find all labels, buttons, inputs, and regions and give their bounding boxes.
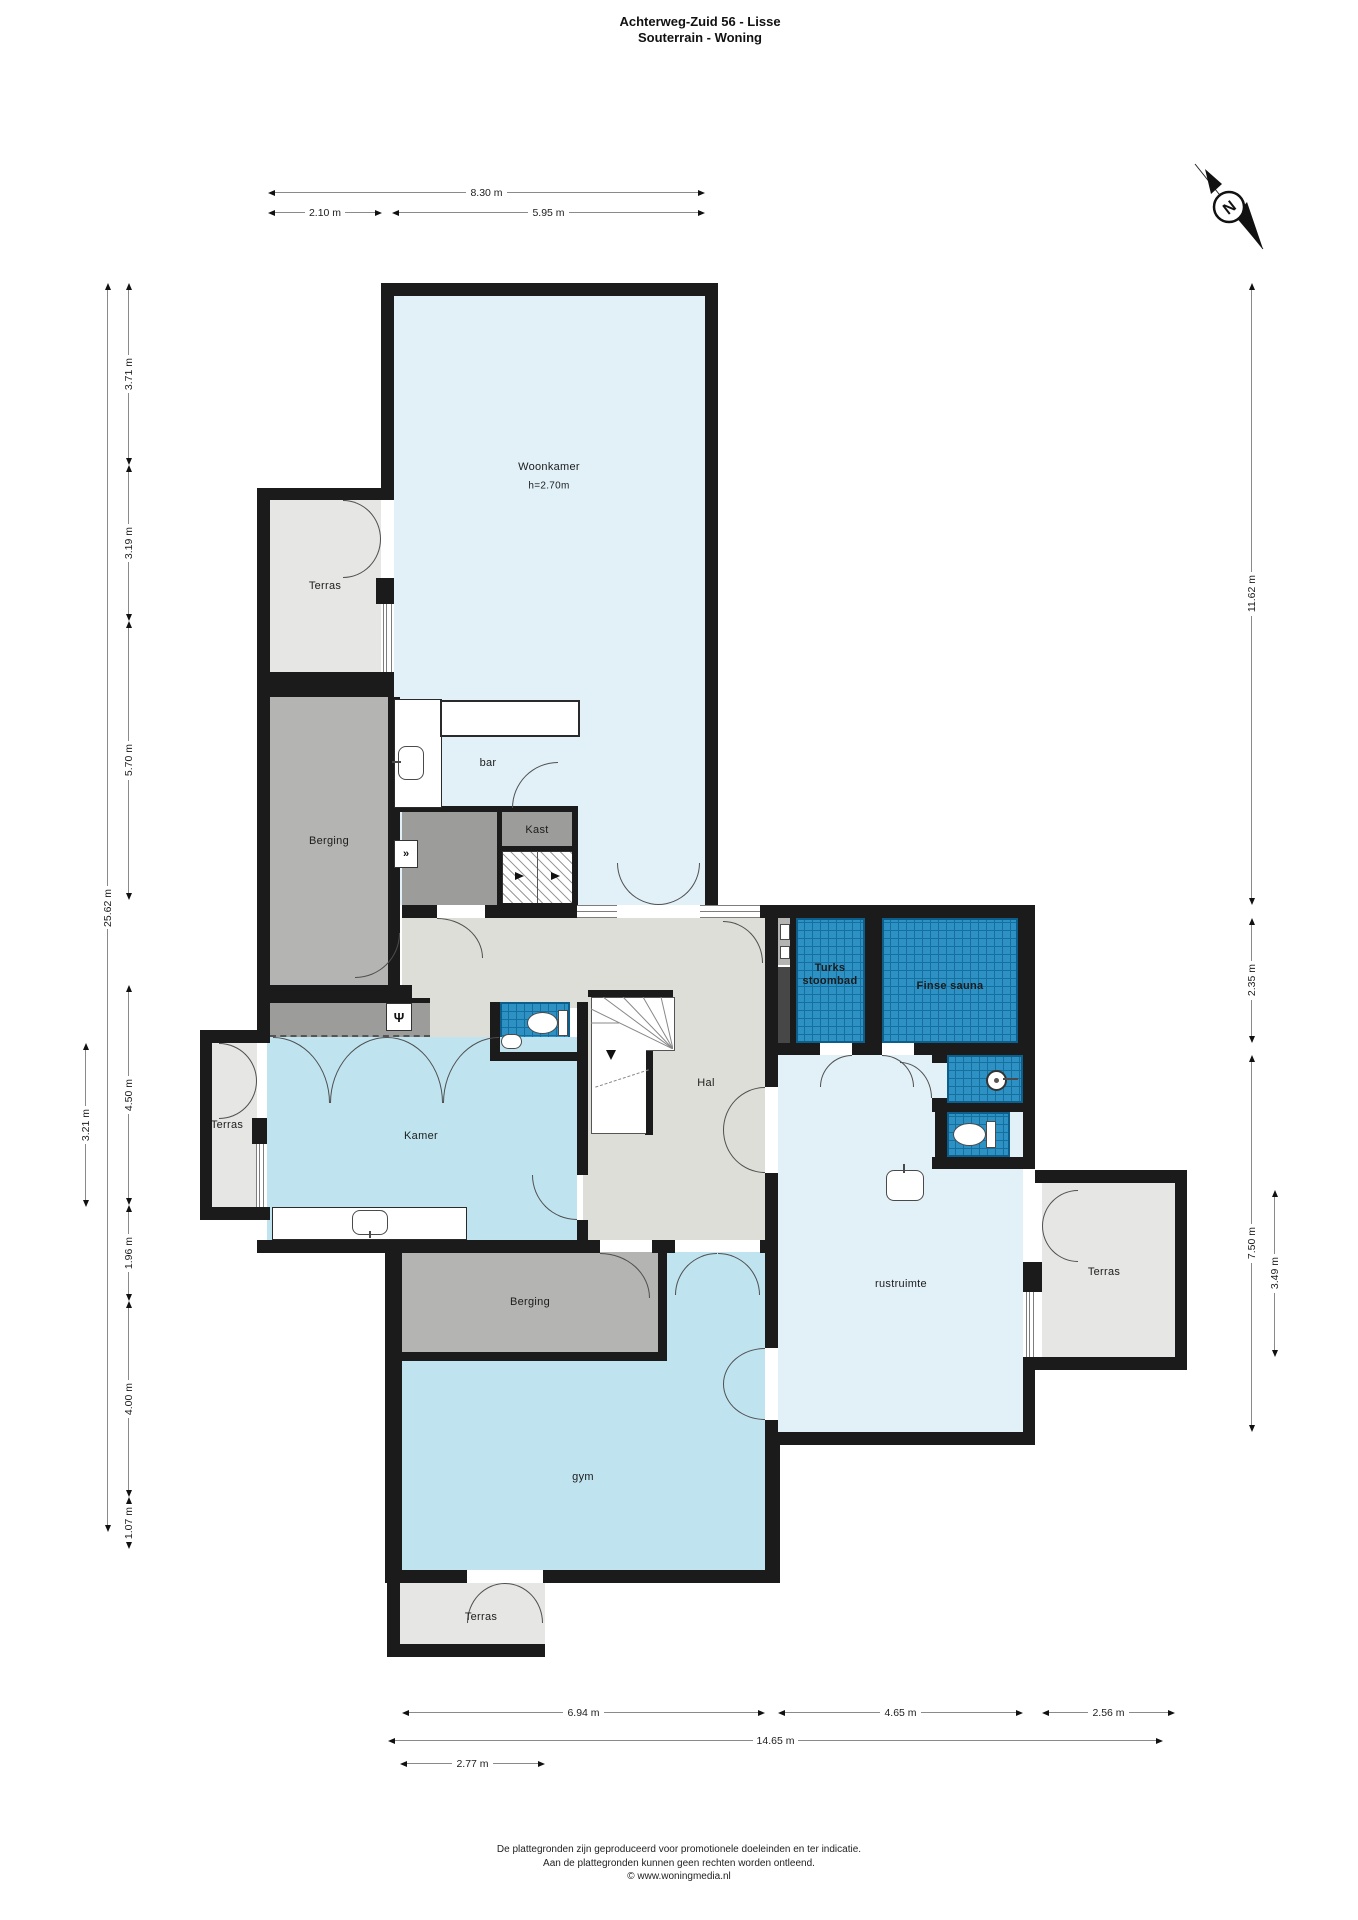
wall	[1175, 1170, 1187, 1370]
wall	[252, 1118, 267, 1144]
window	[577, 905, 617, 918]
stairs-arrow-1	[515, 872, 524, 880]
dimension-bottom-terras-r: 2.56 m	[1042, 1706, 1175, 1719]
room-label-hal: Hal	[697, 1077, 714, 1089]
sink-toilet-kamer	[501, 1034, 522, 1049]
wall	[257, 488, 394, 500]
vestibule-fixture	[780, 946, 790, 959]
footer-line2: Aan de plattegronden kunnen geen rechten…	[329, 1857, 1029, 1871]
wall	[760, 1240, 778, 1253]
wall	[932, 1103, 1035, 1112]
wall	[778, 905, 1035, 918]
room-label-berging-2: Berging	[510, 1296, 550, 1308]
wall	[497, 903, 577, 918]
wall	[914, 1043, 1035, 1055]
wall	[588, 990, 673, 997]
wall	[200, 1207, 270, 1220]
compass-rose: N	[1183, 152, 1275, 254]
toilet-bowl	[527, 1012, 558, 1034]
room-label-rustruimte: rustruimte	[875, 1278, 927, 1290]
floorplan-page: Achterweg-Zuid 56 - Lisse Souterrain - W…	[0, 0, 1358, 1920]
title-address: Achterweg-Zuid 56 - Lisse	[420, 14, 980, 30]
footer-line1: De plattegronden zijn geproduceerd voor …	[329, 1843, 1029, 1857]
bar-sink-tap	[392, 761, 401, 763]
wall	[572, 812, 578, 905]
dimension-left-5: 1.96 m	[122, 1205, 135, 1301]
wall	[402, 905, 437, 918]
stairs-divider	[537, 851, 538, 903]
wall	[765, 1173, 778, 1228]
room-height-woonkamer: h=2.70m	[528, 481, 569, 492]
dimension-bottom-terras-o: 2.77 m	[400, 1757, 545, 1770]
wall	[257, 998, 270, 1032]
room-label-berging-1: Berging	[309, 835, 349, 847]
wall	[381, 283, 718, 296]
wall	[765, 1445, 780, 1583]
room-label-terras-onder: Terras	[465, 1611, 497, 1623]
footer-disclaimer: De plattegronden zijn geproduceerd voor …	[329, 1843, 1029, 1884]
room-label-turks-stoombad: Turks stoombad	[803, 962, 858, 988]
wall	[658, 1250, 667, 1361]
dimension-top-total: 8.30 m	[268, 186, 705, 199]
dimension-left-7: 1.07 m	[122, 1497, 135, 1549]
wall	[765, 1043, 820, 1055]
room-label-gym: gym	[572, 1471, 594, 1483]
toilet-bowl	[953, 1123, 986, 1146]
window	[383, 604, 392, 672]
shower-head-icon	[986, 1070, 1007, 1091]
page-title: Achterweg-Zuid 56 - Lisse Souterrain - W…	[420, 14, 980, 46]
wall	[645, 1049, 653, 1135]
room-label-kamer: Kamer	[404, 1130, 438, 1142]
stairs-winder-lower	[591, 1049, 646, 1134]
wall	[387, 1644, 545, 1657]
boiler-glyph: »	[403, 848, 409, 860]
dimension-left-4: 4.50 m	[122, 985, 135, 1205]
wall	[577, 1002, 588, 1175]
wall	[932, 1055, 947, 1063]
wall	[790, 918, 796, 1043]
wall	[490, 1052, 577, 1061]
duct-niche	[778, 967, 790, 1043]
wall	[257, 672, 394, 697]
dimension-top-woonkamer: 5.95 m	[392, 206, 705, 219]
dimension-right-1: 11.62 m	[1245, 283, 1258, 905]
room-label-finse-sauna: Finse sauna	[917, 980, 984, 992]
window	[256, 1144, 264, 1207]
dimension-left-2: 3.19 m	[122, 465, 135, 621]
room-label-terras-rechts: Terras	[1088, 1266, 1120, 1278]
dimension-right-terras: 3.49 m	[1268, 1190, 1281, 1357]
stairs-arrow-2	[551, 872, 560, 880]
wall	[257, 500, 270, 998]
coat-rack-icon: Ψ	[386, 1003, 412, 1031]
wall	[865, 918, 882, 1043]
dimension-left-terras: 3.21 m	[79, 1043, 92, 1207]
kamer-vanity-tap	[369, 1231, 371, 1238]
wall	[1035, 1357, 1187, 1370]
dimension-top-terras: 2.10 m	[268, 206, 382, 219]
room-label-bar: bar	[480, 757, 497, 769]
coat-rack-glyph: Ψ	[394, 1010, 405, 1025]
wall	[765, 1055, 778, 1087]
wall	[935, 1112, 947, 1157]
room-label-kast: Kast	[525, 824, 548, 836]
turks-line2: stoombad	[803, 975, 858, 988]
room-label-woonkamer: Woonkamer	[518, 461, 580, 473]
shower-pipe	[1003, 1078, 1018, 1080]
window	[700, 905, 760, 918]
dimension-left-3: 5.70 m	[122, 621, 135, 900]
wall	[402, 1352, 658, 1361]
toilet-tank	[558, 1010, 568, 1036]
stairs-winder-treads	[591, 997, 673, 1049]
dimension-left-6: 4.00 m	[122, 1301, 135, 1497]
wall	[1035, 1170, 1187, 1183]
wall	[497, 812, 502, 905]
dimension-left-total: 25.62 m	[101, 283, 114, 1532]
title-floor: Souterrain - Woning	[420, 30, 980, 46]
toilet-tank	[986, 1121, 996, 1148]
wall	[485, 905, 499, 918]
toilet-fixture	[527, 1010, 569, 1036]
rustruimte-sink-tap	[903, 1164, 905, 1173]
vestibule-fixture	[780, 924, 790, 940]
dimension-bottom-total: 14.65 m	[388, 1734, 1163, 1747]
footer-copyright: © www.woningmedia.nl	[329, 1870, 1029, 1884]
dimension-right-3: 7.50 m	[1245, 1055, 1258, 1432]
dimension-left-1: 3.71 m	[122, 283, 135, 465]
wall	[765, 1420, 778, 1445]
room-label-terras-boven: Terras	[309, 580, 341, 592]
floor-gym	[402, 1361, 765, 1570]
dimension-bottom-rustruimte: 4.65 m	[778, 1706, 1023, 1719]
wall	[1023, 1262, 1042, 1292]
wall	[932, 1157, 1035, 1169]
rustruimte-sink	[886, 1170, 924, 1201]
wall	[543, 1570, 780, 1583]
wall	[376, 578, 394, 604]
boiler-icon: »	[394, 840, 418, 868]
stairs-down-arrow	[606, 1050, 616, 1060]
wall	[385, 1570, 467, 1583]
stairs-straight	[502, 851, 574, 905]
window	[1026, 1292, 1034, 1357]
wall	[1018, 905, 1035, 1055]
wall	[765, 1432, 1035, 1445]
room-label-terras-links: Terras	[211, 1119, 243, 1131]
wall	[257, 1240, 600, 1253]
wall	[852, 1043, 882, 1055]
turks-line1: Turks	[803, 962, 858, 975]
dimension-right-2: 2.35 m	[1245, 918, 1258, 1043]
bar-sink	[398, 746, 424, 780]
wall	[705, 296, 718, 918]
bar-counter	[440, 700, 580, 737]
dimension-bottom-gym: 6.94 m	[402, 1706, 765, 1719]
wall	[381, 296, 394, 500]
wall	[765, 905, 778, 1055]
wall	[385, 1250, 402, 1570]
toilet-fixture	[953, 1121, 997, 1148]
wall	[1023, 1055, 1035, 1169]
